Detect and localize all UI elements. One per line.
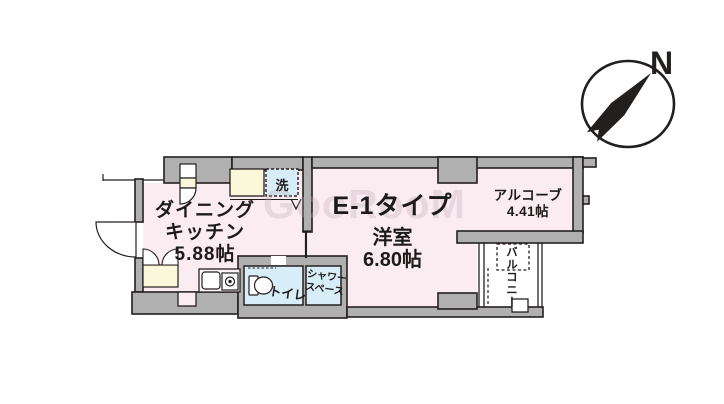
- floor-plan: GooRooM ダイニング キッチン 5.88帖 E-1タイプ 洋室 6.80帖…: [0, 0, 724, 404]
- western-room-size: 6.80帖: [305, 249, 480, 271]
- entrance-door-swing: [96, 222, 136, 257]
- washer-label: 洗: [266, 175, 298, 194]
- western-room-name: 洋室: [305, 227, 480, 249]
- kitchen-sink: [202, 272, 220, 289]
- closet-cabinet: [143, 265, 178, 287]
- wall-top-nook: [232, 157, 303, 170]
- western-room-label: E-1タイプ 洋室 6.80帖: [305, 192, 480, 271]
- floor-notch: [178, 292, 196, 306]
- dining-kitchen-name-line2: キッチン: [140, 222, 270, 244]
- entry-cabinet: [180, 164, 196, 178]
- north-label: N: [650, 45, 673, 82]
- entry-shelf: [180, 178, 196, 188]
- alcove-label: アルコーブ 4.41帖: [480, 188, 576, 219]
- toilet-door-opening: [271, 256, 286, 265]
- alcove-name: アルコーブ: [480, 188, 576, 204]
- dining-kitchen-name-line1: ダイニング: [140, 200, 270, 222]
- dining-kitchen-label: ダイニング キッチン 5.88帖: [140, 200, 270, 266]
- wall-top-left: [164, 157, 232, 183]
- alcove-size: 4.41帖: [480, 204, 576, 220]
- nook-counter: [230, 169, 264, 196]
- stove-burner-dot: [228, 280, 231, 283]
- shower-label: シャワー スペース: [304, 268, 342, 299]
- wall-tick-right: [583, 196, 589, 204]
- pillar-top: [438, 157, 477, 183]
- pillar-bottom: [438, 293, 477, 309]
- wall-tick-top-right: [583, 158, 596, 167]
- balcony-label: バルコニー: [503, 246, 519, 312]
- kitchen-counter: [199, 269, 240, 292]
- dining-kitchen-size: 5.88帖: [140, 244, 270, 266]
- unit-type: E-1タイプ: [305, 192, 480, 220]
